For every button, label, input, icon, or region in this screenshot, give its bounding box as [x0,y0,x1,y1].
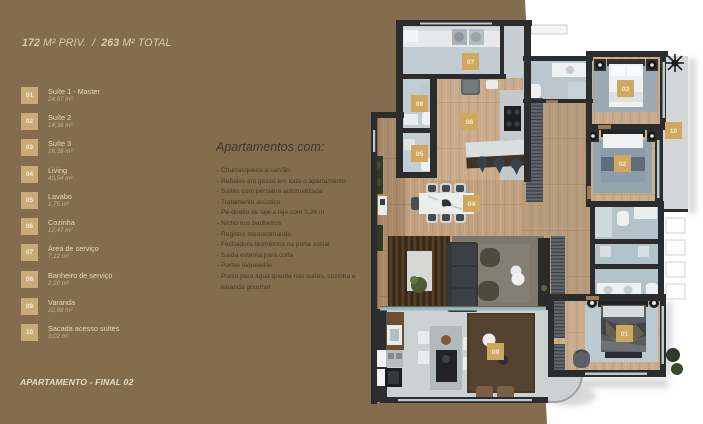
svg-text:09: 09 [492,349,500,356]
svg-text:02: 02 [619,161,627,168]
svg-text:03: 03 [622,86,630,93]
svg-text:08: 08 [416,101,424,108]
svg-text:05: 05 [416,151,424,158]
svg-text:10: 10 [670,128,678,135]
svg-text:04: 04 [468,201,476,208]
svg-text:07: 07 [467,59,475,66]
svg-text:01: 01 [621,331,629,338]
svg-text:06: 06 [466,119,474,126]
